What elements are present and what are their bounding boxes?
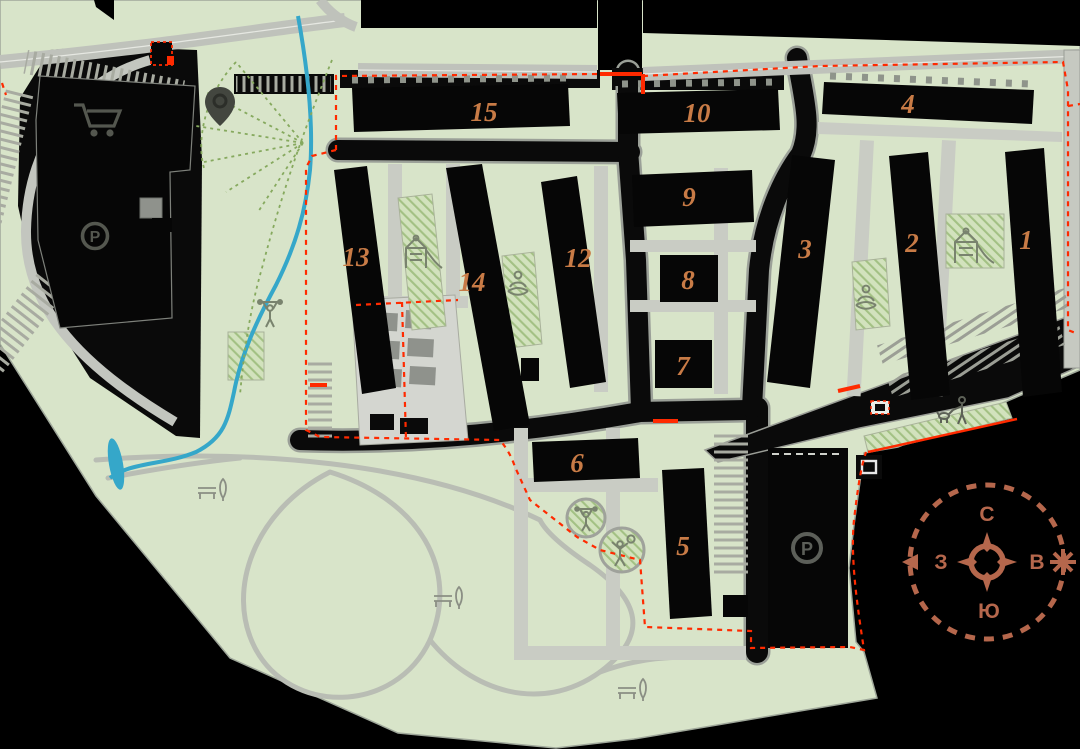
compass-north-label: С: [979, 503, 994, 526]
building-label-9: 9: [682, 182, 696, 212]
building-label-7: 7: [676, 351, 691, 381]
building-label-6: 6: [570, 448, 584, 478]
entrance-red-marker: [871, 401, 889, 414]
yoga-zone-east: [852, 258, 890, 330]
building-6-shape[interactable]: [532, 438, 640, 482]
building-label-4: 4: [900, 89, 915, 119]
building-label-2: 2: [904, 228, 919, 258]
compass-east-label: В: [1029, 551, 1044, 574]
building-label-10: 10: [684, 98, 712, 128]
mall-parking-letter: P: [90, 229, 101, 246]
building-label-3: 3: [797, 234, 812, 264]
building-label-12: 12: [565, 243, 592, 273]
building-6[interactable]: [532, 438, 640, 482]
substation-icon: [856, 455, 882, 479]
building-label-1: 1: [1019, 225, 1033, 255]
garage-parking-letter: P: [801, 539, 813, 559]
building-15-shape[interactable]: [352, 84, 570, 132]
map-svg: P: [0, 0, 1080, 749]
building-label-13: 13: [343, 242, 370, 272]
ball-court-circle: [600, 528, 644, 572]
building-label-15: 15: [471, 97, 498, 127]
building-label-5: 5: [676, 531, 690, 561]
building-label-8: 8: [681, 265, 695, 295]
master-plan-map: P: [0, 0, 1080, 749]
workout-zone-west: [228, 332, 264, 380]
building-15[interactable]: [352, 84, 570, 132]
compass-south-label: Ю: [978, 600, 1000, 623]
east-road: [1064, 50, 1080, 368]
gatehouse-red-building: [151, 42, 174, 65]
compass-west-label: З: [934, 551, 947, 574]
building-label-14: 14: [459, 267, 486, 297]
parking-garage[interactable]: P: [768, 448, 848, 648]
